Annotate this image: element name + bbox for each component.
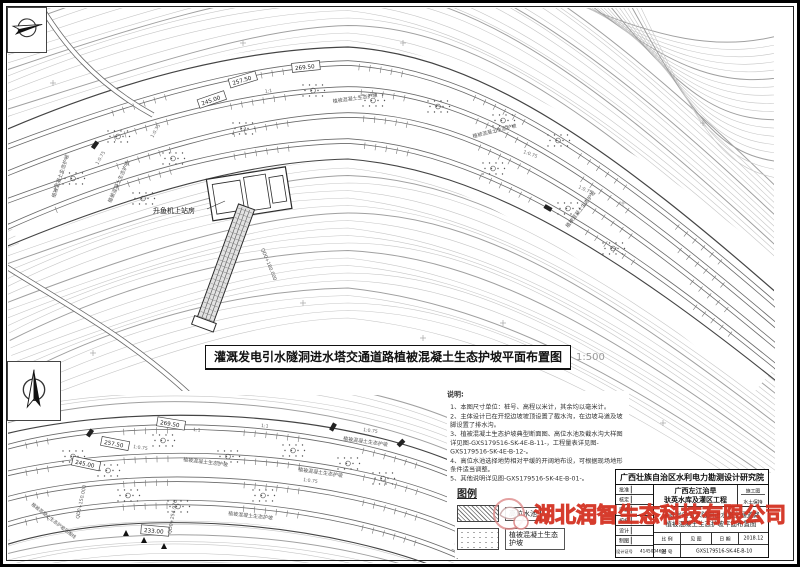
- role-label: 审查: [617, 506, 631, 514]
- drawing-title-bar: 灌溉发电引水隧洞进水塔交通道路植被混凝土生态护坡平面布置图 1:500: [205, 345, 605, 370]
- fish-lift-station: 升鱼机上站房: [153, 167, 292, 332]
- title-block: 广西壮族自治区水利电力勘测设计研究院 批准核定审查校核设计制图 设计证号 414…: [615, 469, 769, 558]
- north-arrow-box-bottom: [7, 361, 61, 421]
- drawing-scale: 1:500: [576, 352, 605, 363]
- note-item: 5、其他说明详见图-GXS179516-SK-4E-B-01-。: [450, 474, 629, 483]
- notes-title: 说明:: [447, 391, 629, 400]
- project-line1: 广西左江治旱: [675, 487, 717, 496]
- note-item: 1、本图尺寸单位：桩号、高程以米计，其余均以毫米计。: [450, 403, 629, 412]
- role-label: 校核: [617, 516, 631, 524]
- legend-label: 高位水池: [505, 507, 541, 521]
- svg-text:升鱼机上站房: 升鱼机上站房: [153, 206, 195, 215]
- role-label: 批准: [617, 486, 631, 494]
- role-label: 制图: [617, 537, 631, 545]
- legend-title: 图例: [457, 485, 565, 500]
- project-name: 广西左江治旱 驮英水库及灌区工程: [654, 485, 738, 506]
- legend-panel: 图例 高位水池 植被混凝土生态护坡: [455, 483, 567, 558]
- legend-label: 植被混凝土生态护坡: [505, 528, 565, 550]
- cert-row: 设计证号 4145004694: [616, 546, 653, 557]
- svg-text:1:1: 1:1: [264, 88, 272, 95]
- north-arrow-box-top: [7, 7, 47, 53]
- note-item: 4、高位水池选择地势相对平缓的开阔地布设，可根据现场地形条件适当调整。: [450, 457, 629, 474]
- role-label: 设计: [617, 526, 631, 534]
- note-item: 2、主体设计已在开挖边坡坡顶设置了截水沟，在边坡马道及坡脚设置了排水沟。: [450, 412, 629, 429]
- cert-label: 设计证号: [616, 548, 633, 554]
- institute-name: 广西壮族自治区水利电力勘测设计研究院: [616, 470, 768, 485]
- legend-item-pool: 高位水池: [457, 505, 565, 522]
- north-arrow-icon: [14, 367, 54, 415]
- scale-label: 比 例: [661, 535, 672, 542]
- stage-label: 施工图: [741, 486, 765, 495]
- svg-text:1:1: 1:1: [193, 427, 201, 434]
- signature-column: 批准核定审查校核设计制图 设计证号 4145004694: [616, 485, 654, 557]
- notes-list: 1、本图尺寸单位：桩号、高程以米计，其余均以毫米计。2、主体设计已在开挖边坡坡顶…: [447, 403, 629, 483]
- specialty-label: 水土保持: [741, 497, 765, 505]
- stage-column: 施工图 水土保持: [738, 485, 768, 506]
- dots-swatch-icon: [457, 528, 499, 550]
- project-line2: 驮英水库及灌区工程: [664, 496, 727, 505]
- signature-row: 校核: [616, 516, 653, 526]
- north-arrow-icon: [10, 10, 44, 50]
- note-item: 3、植被混凝土生态护坡典型断面图、高位水池及截水沟大样图详见图-GXS17951…: [450, 430, 629, 456]
- drawing-name-line1: 灌溉发电引水隧洞进水塔交通道路: [662, 511, 760, 520]
- signature-row: 批准: [616, 485, 653, 495]
- signature-row: 设计: [616, 526, 653, 536]
- svg-text:1:1: 1:1: [261, 423, 269, 430]
- hatch-swatch-icon: [457, 505, 499, 522]
- svg-text:QD0+180.000: QD0+180.000: [259, 248, 277, 282]
- legend-item-ecoslope: 植被混凝土生态护坡: [457, 528, 565, 550]
- date-value: 2018.12: [744, 536, 764, 542]
- drawing-name-line2: 植被混凝土生态护坡平面布置图: [666, 520, 757, 529]
- number-label: 图 号: [661, 547, 672, 554]
- drawing-name-cell: 灌溉发电引水隧洞进水塔交通道路 植被混凝土生态护坡平面布置图: [654, 507, 768, 533]
- signature-row: 核定: [616, 495, 653, 505]
- drawing-number: GXS179516-SK-4E-B-10: [696, 548, 752, 554]
- signature-row: 审查: [616, 505, 653, 515]
- drawing-title: 灌溉发电引水隧洞进水塔交通道路植被混凝土生态护坡平面布置图: [205, 345, 571, 370]
- drawing-sheet: 植被混凝土生态护坡植被混凝土生态护坡植被混凝土生态护坡植被混凝土生态护坡植被混凝…: [0, 0, 800, 567]
- scale-value: 见 图: [690, 535, 701, 542]
- role-label: 核定: [617, 496, 631, 504]
- signature-row: 制图: [616, 536, 653, 546]
- date-label: 日 期: [719, 535, 730, 542]
